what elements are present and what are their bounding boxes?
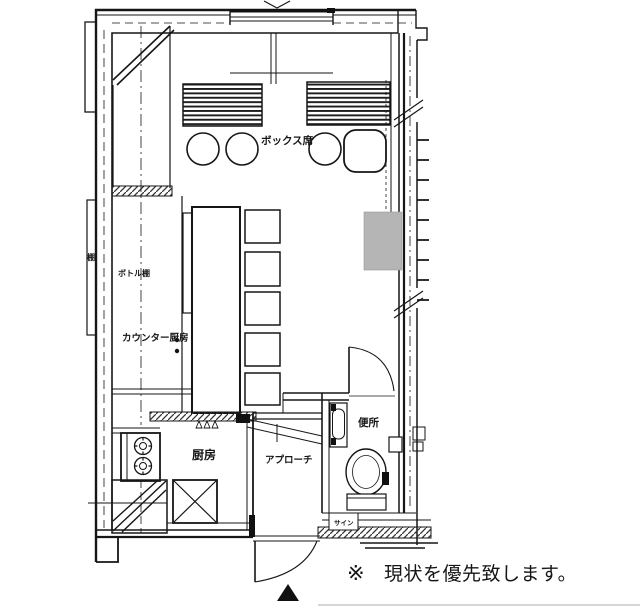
burner-2 <box>135 458 152 475</box>
note-text: 現状を優先致します。 <box>384 563 577 585</box>
counter <box>192 207 240 413</box>
threshold <box>253 536 320 541</box>
wall-niche <box>389 437 402 452</box>
counter-chair-4 <box>245 333 280 366</box>
label-toilet: 便所 <box>358 416 379 429</box>
round-table-1 <box>187 133 219 165</box>
service-fixture <box>236 414 250 423</box>
flush-handle <box>382 472 389 485</box>
note-asterisk: ※ <box>347 561 365 585</box>
window-latch <box>327 8 335 13</box>
right-wall <box>394 33 429 545</box>
ramp-lines <box>247 419 322 444</box>
north-v-mark <box>264 1 290 8</box>
shelf-hatch-upper <box>112 186 172 196</box>
corner-cabinet <box>112 26 182 425</box>
window-mullion <box>271 33 276 84</box>
counter-chair-3 <box>245 292 280 325</box>
label-approach: アプローチ <box>265 454 313 466</box>
toilet-tank <box>347 494 386 510</box>
box-seating-area <box>183 82 390 172</box>
label-counter-kitchen: カウンター厨房 <box>122 332 189 344</box>
toilet-door-swing <box>349 347 394 391</box>
exterior-wall-left-upper <box>85 22 96 112</box>
round-table-3 <box>309 133 341 165</box>
bench-seat-left <box>183 84 262 126</box>
top-window <box>230 1 335 84</box>
label-box-seats: ボックス席 <box>261 134 314 147</box>
floor-plan-page: ボックス席 ボトル棚 カウンター厨房 厨房 アプローチ 便所 サイン 棚 ※ 現… <box>0 0 640 612</box>
toilet-room <box>318 347 438 548</box>
label-shelf: 棚 <box>87 252 95 262</box>
counter-chair-1 <box>245 210 280 243</box>
hand-sink <box>330 403 347 447</box>
counter-chair-5 <box>245 373 280 405</box>
entrance-triangle-marker <box>277 584 299 601</box>
priority-note: ※ 現状を優先致します。 <box>347 561 577 585</box>
square-table <box>344 130 386 172</box>
bench-seat-right <box>307 82 390 125</box>
toilet-fixture <box>346 449 389 513</box>
corner-brace <box>113 26 174 85</box>
exterior-wall-left-lower <box>87 200 96 335</box>
label-kitchen: 厨房 <box>192 447 216 462</box>
round-table-2 <box>226 133 258 165</box>
label-sign: サイン <box>334 519 354 527</box>
tap-fixture <box>175 349 179 353</box>
step-marks <box>196 421 218 428</box>
counter-back-shelf <box>183 213 192 313</box>
entrance-door-swing <box>255 541 317 582</box>
approach-area <box>247 393 349 601</box>
door-jamb <box>249 515 255 537</box>
floor-plan-canvas: ボックス席 ボトル棚 カウンター厨房 厨房 アプローチ 便所 サイン 棚 ※ 現… <box>0 0 640 612</box>
label-bottle-shelf: ボトル棚 <box>118 268 150 278</box>
burner-1 <box>135 438 152 455</box>
counter-chair-2 <box>245 252 280 286</box>
wall-tick-marks <box>417 140 429 300</box>
gray-equipment-box <box>364 212 402 270</box>
counter-area <box>112 207 280 428</box>
